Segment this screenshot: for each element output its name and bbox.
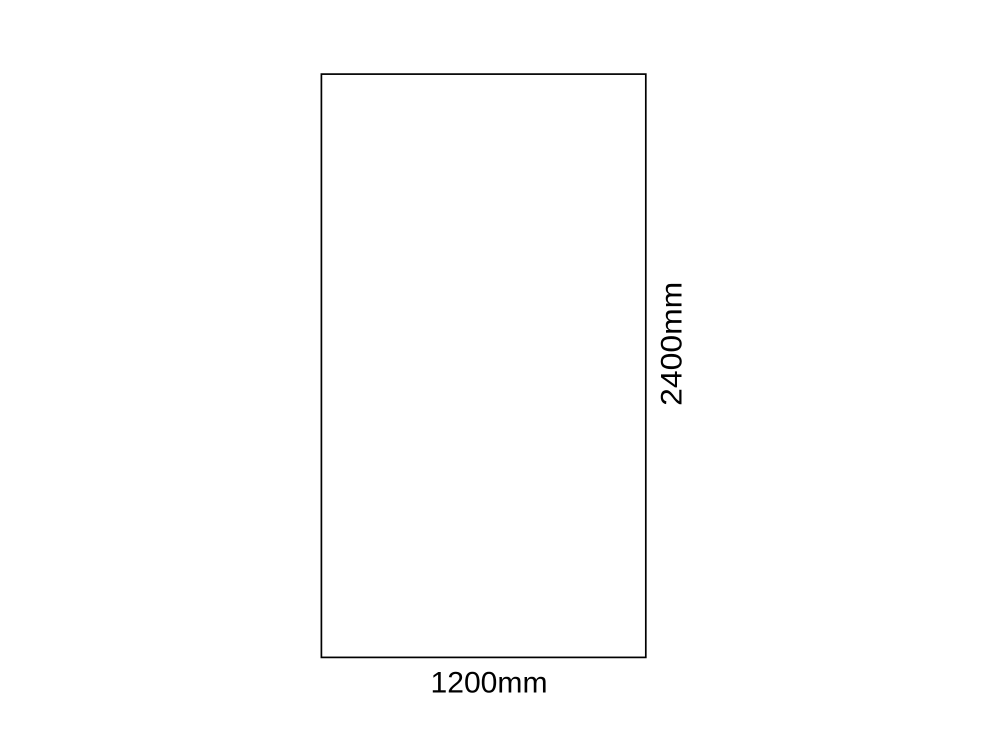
svg-text:1200mm: 1200mm [431,666,548,699]
svg-text:2400mm: 2400mm [656,282,689,406]
